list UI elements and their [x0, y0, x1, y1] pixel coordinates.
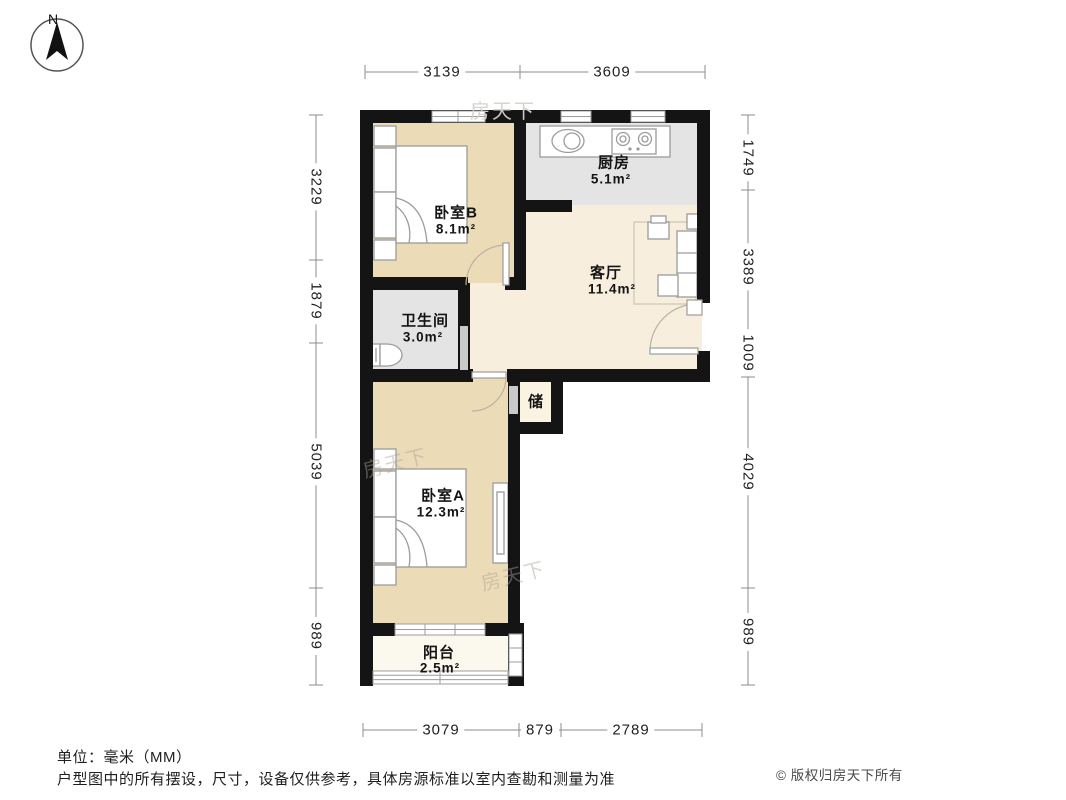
dim-right-5: 989 — [740, 613, 757, 651]
headboard-icon — [374, 471, 396, 517]
wall-balcony-top-left — [360, 623, 395, 636]
toilet-icon — [380, 344, 402, 366]
stove-knob — [629, 148, 631, 150]
storage-door — [509, 386, 518, 414]
headboard-icon — [374, 192, 396, 238]
room-area-living: 11.4m² — [588, 282, 636, 297]
room-label-living: 客厅 — [590, 262, 622, 283]
wall-right-upper — [697, 110, 710, 303]
headboard-icon — [374, 148, 396, 192]
room-label-bathroom: 卫生间 — [401, 310, 449, 331]
bathroom-door — [460, 326, 468, 370]
ruler-top — [365, 65, 705, 79]
wardrobe-icon — [493, 483, 508, 563]
dim-right-2: 3389 — [740, 243, 757, 290]
room-label-kitchen: 厨房 — [598, 152, 630, 173]
armchair-back — [651, 216, 666, 223]
wall-left — [360, 110, 373, 686]
room-label-bedroom-b: 卧室B — [434, 202, 478, 223]
room-area-kitchen: 5.1m² — [591, 172, 631, 187]
room-label-storage: 储 — [528, 391, 544, 412]
dim-left-4: 989 — [308, 617, 325, 655]
dim-left-3: 5039 — [308, 438, 325, 485]
bathroom-furniture — [372, 344, 402, 366]
door-leaf — [650, 348, 698, 354]
disclaimer-note: 户型图中的所有摆设，尺寸，设备仅供参考，具体房源标准以室内查勘和测量为准 — [57, 768, 615, 789]
door-leaf — [503, 243, 509, 285]
unit-note: 单位：毫米（MM） — [57, 746, 192, 767]
window-kitchen-1 — [561, 111, 591, 122]
wall-bathroom-bottom — [360, 369, 473, 382]
dim-top-1: 3139 — [418, 64, 465, 81]
door-frame-block — [687, 300, 702, 315]
nightstand-icon — [374, 449, 396, 469]
window-bedroom-a-balcony — [395, 624, 485, 635]
wall-storage-bottom — [508, 422, 563, 434]
floorplan-page: N 房天下 房天下 房天下 卧室B 8.1m² 厨房 5.1m² 客厅 11.4… — [0, 0, 1066, 800]
stove-knob — [637, 148, 639, 150]
dim-left-1: 3229 — [308, 163, 325, 210]
door-leaf — [472, 372, 506, 378]
dim-bottom-3: 2789 — [607, 722, 654, 739]
dim-bottom-1: 3079 — [417, 722, 464, 739]
headboard-icon — [374, 517, 396, 563]
sofa-icon — [677, 231, 697, 297]
dim-left-2: 1879 — [308, 277, 325, 324]
nightstand-icon — [374, 565, 396, 585]
wall-kitchen-living — [514, 200, 572, 212]
ruler-right — [741, 115, 755, 685]
dim-right-3: 1009 — [740, 329, 757, 376]
wall-living-bottom — [507, 369, 710, 382]
room-label-balcony: 阳台 — [423, 642, 455, 663]
compass-needle — [46, 22, 68, 60]
room-area-bedroom-a: 12.3m² — [417, 505, 466, 520]
room-label-bedroom-a: 卧室A — [421, 485, 465, 506]
room-area-bedroom-b: 8.1m² — [436, 222, 476, 237]
dim-right-4: 4029 — [740, 448, 757, 495]
bedroom-b-furniture — [374, 126, 467, 260]
room-area-bathroom: 3.0m² — [403, 330, 443, 345]
wall-bedroom-b-bottom — [360, 277, 468, 290]
room-area-balcony: 2.5m² — [420, 661, 460, 676]
stove-icon — [612, 129, 656, 154]
compass-north-label: N — [48, 11, 58, 27]
window-balcony-right — [509, 634, 522, 676]
nightstand-icon — [374, 126, 396, 146]
window-kitchen-2 — [631, 111, 665, 122]
dim-right-1: 1749 — [740, 134, 757, 181]
dim-bottom-2: 879 — [521, 722, 559, 739]
window-bedroom-b — [432, 111, 485, 122]
armchair-icon — [648, 222, 669, 239]
dim-top-2: 3609 — [588, 64, 635, 81]
coffee-table-icon — [658, 275, 678, 296]
copyright-note: © 版权归房天下所有 — [776, 764, 903, 784]
hallway-floor — [464, 283, 526, 377]
nightstand-icon — [374, 240, 396, 260]
